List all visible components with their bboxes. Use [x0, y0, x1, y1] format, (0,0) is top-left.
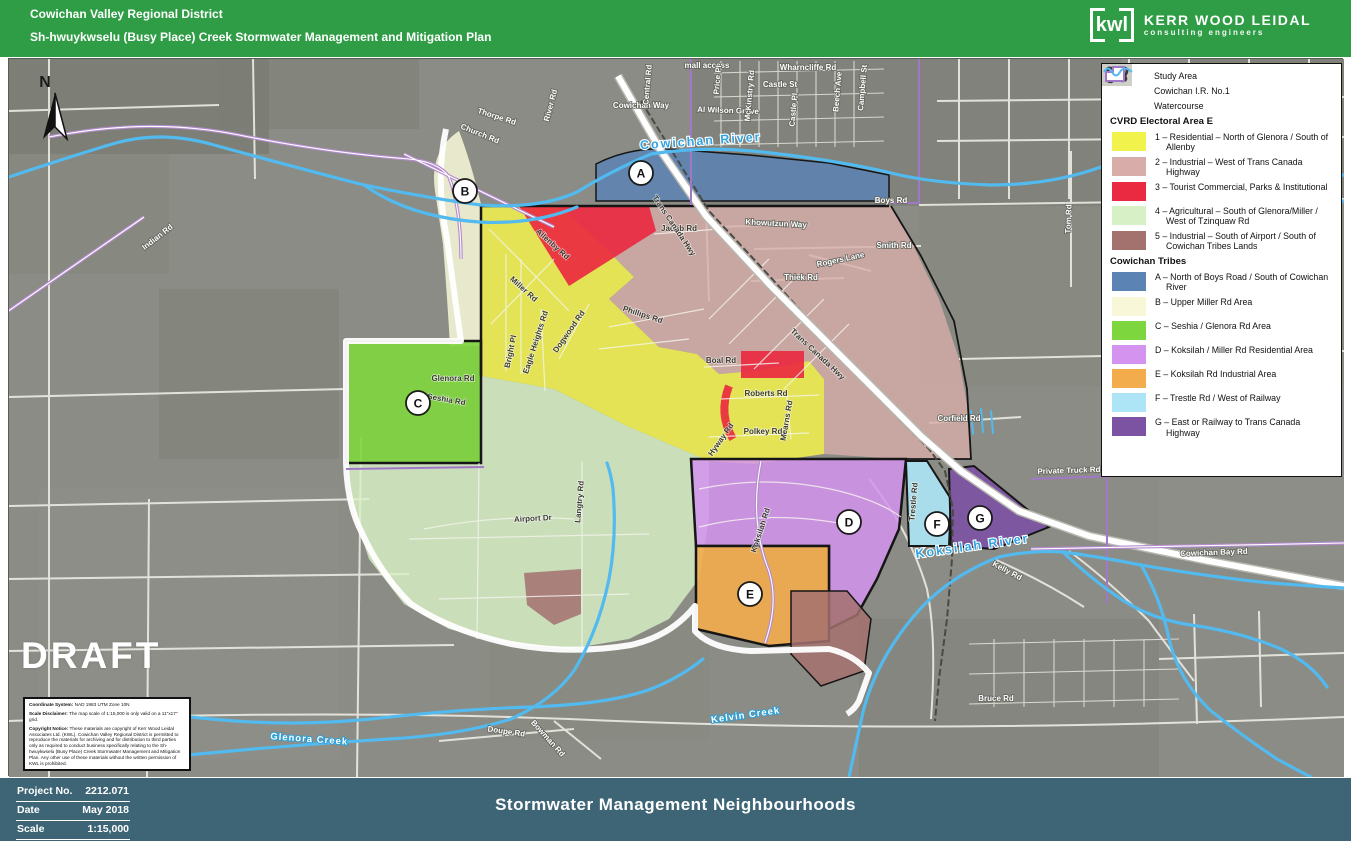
map-label: Boys Rd [875, 196, 908, 205]
legend-cvrd-rows: 1 – Residential – North of Glenora / Sou… [1110, 132, 1335, 251]
legend-item-ir-boundary: Cowichan I.R. No.1 [1110, 86, 1335, 96]
color-swatch [1112, 369, 1146, 388]
coordinate-system-note: Coordinate System: NAD 1983 UTM Zone 10N [29, 702, 185, 708]
color-swatch [1112, 157, 1146, 176]
zone-label: 5 – Industrial – South of Airport / Sout… [1155, 231, 1335, 251]
map-label: Tom Rd [1063, 204, 1073, 234]
zone-label: 1 – Residential – North of Glenora / Sou… [1155, 132, 1335, 152]
cvrd-legend-row-1: 2 – Industrial – West of Trans Canada Hi… [1110, 157, 1335, 177]
zone-label: G – East or Railway to Trans Canada High… [1155, 417, 1335, 437]
draft-watermark: DRAFT [21, 635, 161, 677]
map-label: Polkey Rd [744, 427, 783, 436]
legend-tribes-header: Cowichan Tribes [1110, 256, 1335, 267]
map-label: mall access [685, 61, 730, 70]
marker-letter-b: B [461, 184, 470, 198]
zone-label: D – Koksilah / Miller Rd Residential Are… [1155, 345, 1335, 355]
map-sheet: { "colors": { "header_green": "#2F9D45",… [0, 0, 1351, 841]
cvrd-legend-row-3: 4 – Agricultural – South of Glenora/Mill… [1110, 206, 1335, 226]
cvrd-legend-row-0: 1 – Residential – North of Glenora / Sou… [1110, 132, 1335, 152]
zone-label: C – Seshia / Glenora Rd Area [1155, 321, 1335, 331]
color-swatch [1112, 297, 1146, 316]
color-swatch [1112, 345, 1146, 364]
legend-item-study-area: Study Area [1110, 71, 1335, 81]
title-bar: Cowichan Valley Regional District Sh-hwu… [0, 0, 1351, 57]
cvrd-legend-row-4: 5 – Industrial – South of Airport / Sout… [1110, 231, 1335, 251]
title-block: Cowichan Valley Regional District Sh-hwu… [30, 7, 491, 44]
legend-tribes-rows: A – North of Boys Road / South of Cowich… [1110, 272, 1335, 437]
sheet-title: Stormwater Management Neighbourhoods [0, 795, 1351, 815]
zone-label: 2 – Industrial – West of Trans Canada Hi… [1155, 157, 1335, 177]
scale-row: Scale1:15,000 [16, 821, 130, 840]
marker-letter-g: G [975, 511, 984, 525]
zone-label: F – Trestle Rd / West of Railway [1155, 393, 1335, 403]
color-swatch [1112, 206, 1146, 225]
tribes-legend-row-5: F – Trestle Rd / West of Railway [1110, 393, 1335, 412]
kwl-logo: kwl KERR WOOD LEIDAL consulting engineer… [1090, 8, 1311, 42]
zone-label: B – Upper Miller Rd Area [1155, 297, 1335, 307]
logo-company-name: KERR WOOD LEIDAL [1144, 13, 1311, 28]
legend-symbol-rows: Study AreaCowichan I.R. No.1Watercourse [1110, 71, 1335, 111]
map-label: Bruce Rd [978, 694, 1014, 703]
legend-cvrd-header: CVRD Electoral Area E [1110, 116, 1335, 127]
svg-text:N: N [39, 74, 51, 91]
zone-label: 4 – Agricultural – South of Glenora/Mill… [1155, 206, 1335, 226]
tribes-legend-row-3: D – Koksilah / Miller Rd Residential Are… [1110, 345, 1335, 364]
map-label: Roberts Rd [744, 389, 787, 398]
zone-label: E – Koksilah Rd Industrial Area [1155, 369, 1335, 379]
cvrd-legend-row-2: 3 – Tourist Commercial, Parks & Institut… [1110, 182, 1335, 201]
legend-item-label: Study Area [1154, 71, 1197, 81]
color-swatch [1112, 321, 1146, 340]
tribes-legend-row-1: B – Upper Miller Rd Area [1110, 297, 1335, 316]
marker-letter-d: D [845, 515, 854, 529]
sheet-footer: Project No.2212.071 DateMay 2018 Scale1:… [0, 778, 1351, 841]
plan-title: Sh-hwuykwselu (Busy Place) Creek Stormwa… [30, 30, 491, 44]
map-legend: Study AreaCowichan I.R. No.1Watercourse … [1101, 63, 1342, 477]
marker-letter-f: F [933, 517, 940, 531]
tribes-legend-row-6: G – East or Railway to Trans Canada High… [1110, 417, 1335, 437]
map-label: Smith Rd [876, 241, 911, 250]
kwl-logo-icon: kwl [1090, 8, 1134, 42]
legend-item-watercourse: Watercourse [1110, 101, 1335, 111]
tribes-legend-row-4: E – Koksilah Rd Industrial Area [1110, 369, 1335, 388]
legend-item-label: Cowichan I.R. No.1 [1154, 86, 1230, 96]
map-label: Corfield Rd [937, 414, 980, 423]
map-label: Glenora Rd [431, 374, 474, 383]
map-label: Wharncliffe Rd [780, 63, 837, 72]
color-swatch [1112, 132, 1146, 151]
marker-letter-e: E [746, 587, 754, 601]
copyright-note: Copyright Notice: These materials are co… [29, 726, 185, 767]
color-swatch [1112, 393, 1146, 412]
legend-item-label: Watercourse [1154, 101, 1204, 111]
tribes-legend-row-2: C – Seshia / Glenora Rd Area [1110, 321, 1335, 340]
zone-label: 3 – Tourist Commercial, Parks & Institut… [1155, 182, 1335, 192]
marker-letter-a: A [637, 166, 646, 180]
zone-label: A – North of Boys Road / South of Cowich… [1155, 272, 1335, 292]
map-label: Boal Rd [706, 356, 736, 365]
logo-tagline: consulting engineers [1144, 28, 1311, 37]
map-label: Thiek Rd [784, 273, 818, 282]
map-notes-box: Coordinate System: NAD 1983 UTM Zone 10N… [23, 697, 191, 771]
marker-letter-c: C [414, 396, 423, 410]
org-title: Cowichan Valley Regional District [30, 7, 491, 21]
tribes-legend-row-0: A – North of Boys Road / South of Cowich… [1110, 272, 1335, 292]
color-swatch [1112, 231, 1146, 250]
color-swatch [1112, 272, 1146, 291]
map-label: Castle St [763, 80, 798, 89]
color-swatch [1112, 417, 1146, 436]
scale-disclaimer-note: Scale Disclaimer: The map scale of 1:15,… [29, 711, 185, 723]
map-canvas: Indian RdThorpe RdChurch RdRiver RdCowic… [8, 58, 1343, 776]
color-swatch [1112, 182, 1146, 201]
